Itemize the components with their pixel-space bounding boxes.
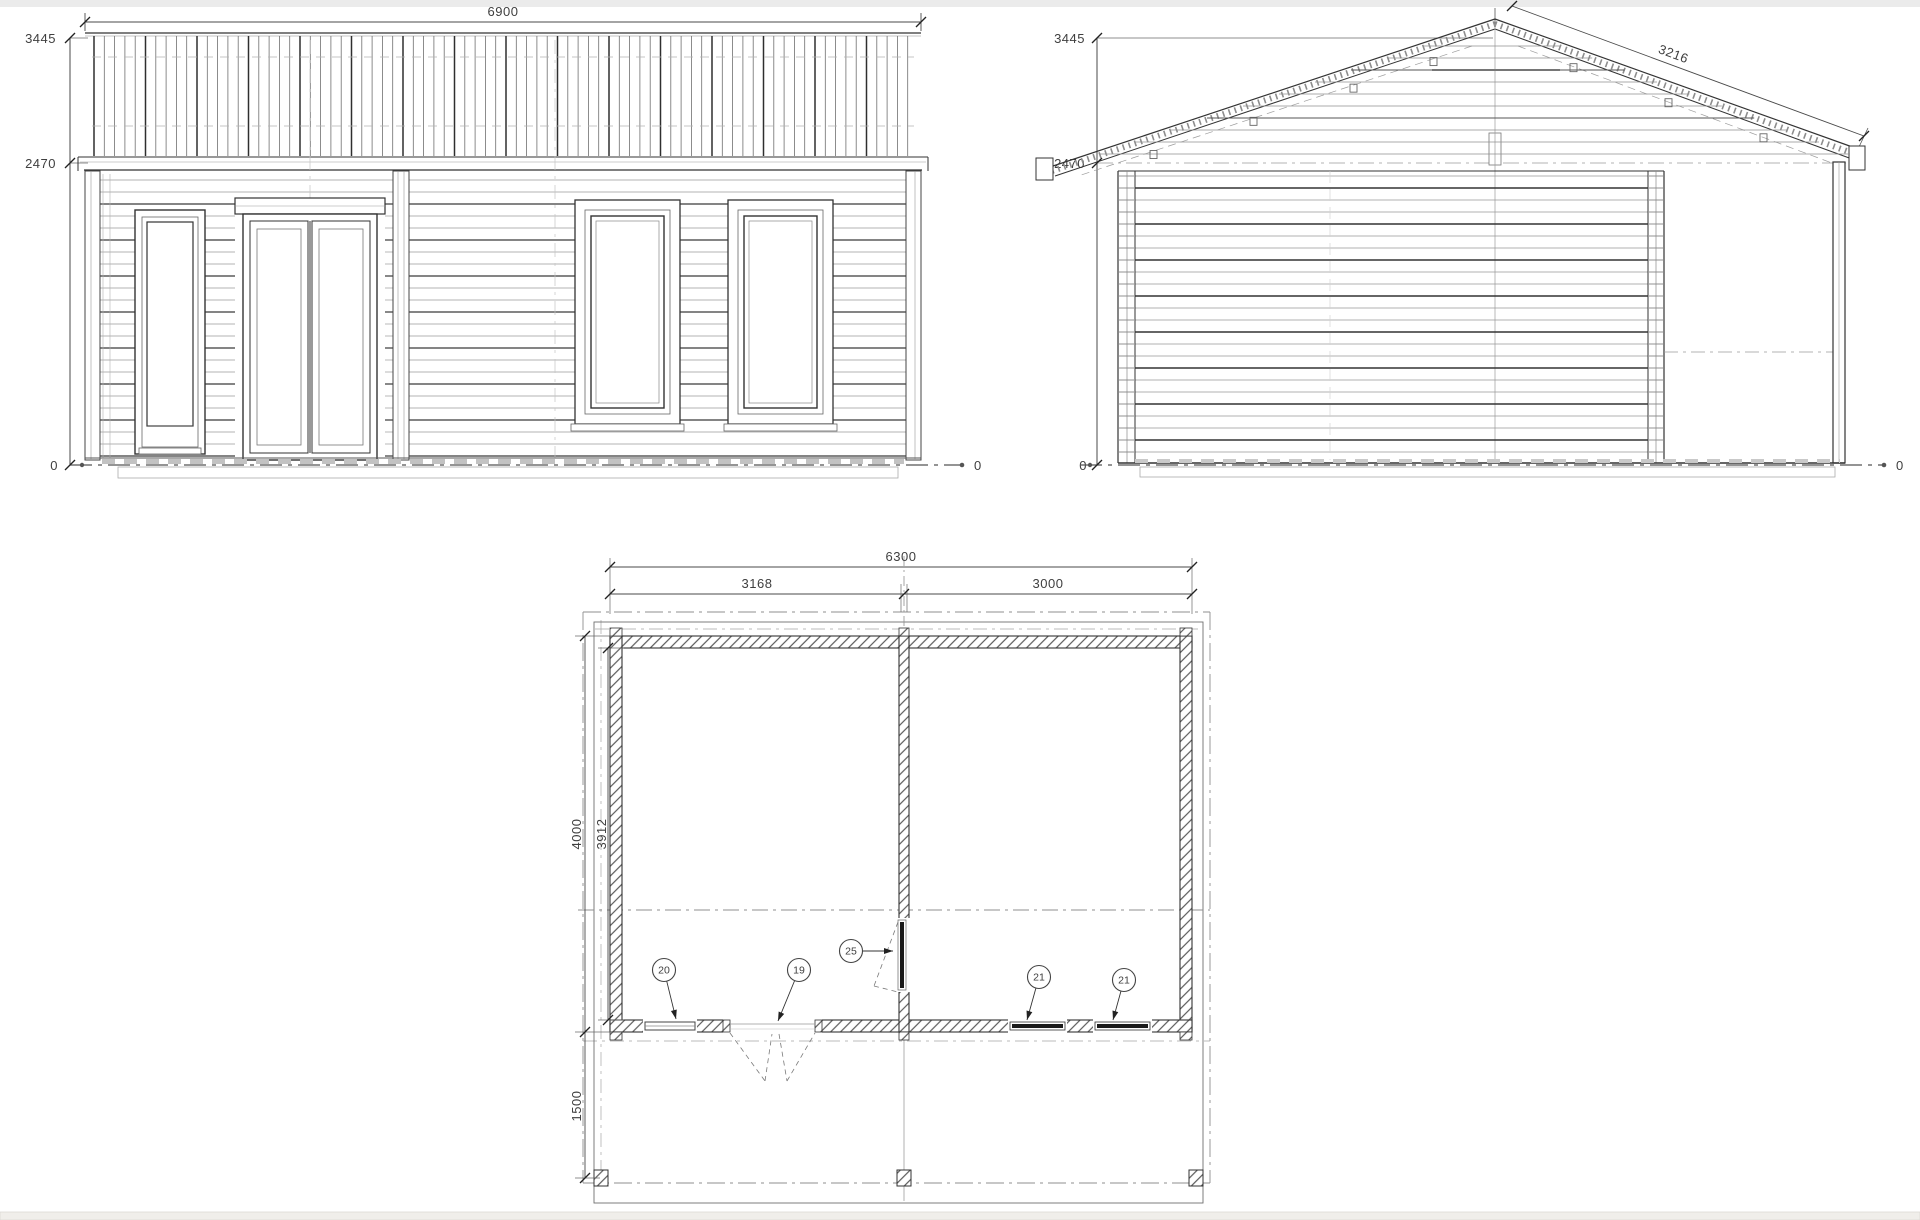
side-height-dimension: 3445 2470 0 xyxy=(1054,31,1860,473)
front-width-dimension: 6900 xyxy=(85,4,921,31)
ground-dot xyxy=(960,463,965,468)
dim-label-left-room: 3168 xyxy=(742,576,773,591)
side-log-wall xyxy=(1118,162,1845,463)
front-roof xyxy=(78,33,928,171)
callout-label: 25 xyxy=(845,946,857,958)
dim-label-slope: 3216 xyxy=(1656,41,1690,66)
dim-label-total-width: 6300 xyxy=(886,549,917,564)
dim-label-ridge: 3445 xyxy=(25,31,56,46)
gutter-end-right xyxy=(1849,146,1865,170)
dim-label-terrace-depth: 1500 xyxy=(569,1091,584,1122)
window-25-swing xyxy=(874,986,898,992)
roof-edge-right xyxy=(1495,19,1858,149)
roof-shingle-right xyxy=(1495,24,1855,154)
front-window-b xyxy=(724,200,837,431)
callout-20: 20 xyxy=(653,959,677,1020)
gutter-end-left xyxy=(1036,158,1053,180)
dim-label-eave: 2470 xyxy=(25,156,56,171)
front-vertical-trim xyxy=(393,171,409,460)
corner-board-left xyxy=(85,171,100,460)
dimension-ticks xyxy=(65,1,1869,1183)
callout-label: 19 xyxy=(793,965,805,977)
side-roof-brackets xyxy=(1150,58,1767,159)
front-roof-battens xyxy=(94,36,908,156)
terrace-post-plan xyxy=(1189,1170,1203,1186)
drawing-sheet: 6900 3445 2470 0 xyxy=(0,0,1920,1220)
dim-label-ground-right: 0 xyxy=(974,458,982,473)
dim-label-ridge: 3445 xyxy=(1054,31,1085,46)
side-elevation: 3445 2470 0 3216 xyxy=(1036,6,1904,477)
dim-label-depth: 4000 xyxy=(569,819,584,850)
front-window-a xyxy=(571,200,684,431)
ground-dot xyxy=(1882,463,1887,468)
front-window-narrow xyxy=(135,210,205,454)
window-outer xyxy=(135,210,205,454)
plan-openings xyxy=(643,918,1152,1081)
callout-19: 19 xyxy=(778,959,811,1022)
window-25-glass xyxy=(900,922,904,988)
wall-stub xyxy=(899,628,909,636)
front-double-door xyxy=(235,198,385,460)
dim-label-inner-depth: 3912 xyxy=(594,819,609,850)
window-21a-glass xyxy=(1012,1024,1063,1028)
callout-arrow xyxy=(671,1010,677,1019)
floor-plan: 6300 3168 3000 4000 3912 1500 2019252121 xyxy=(569,549,1210,1203)
callout-label: 21 xyxy=(1118,975,1130,987)
roof-edge-left xyxy=(1050,19,1495,167)
dim-tick xyxy=(1859,131,1869,141)
opening-door-19 xyxy=(723,1018,822,1034)
front-foundation: 0 xyxy=(70,458,982,478)
window-25-swing xyxy=(874,922,898,986)
front-height-dimension: 3445 2470 0 xyxy=(25,31,88,473)
cad-drawing: 6900 3445 2470 0 xyxy=(0,0,1920,1220)
dim-label-width: 6900 xyxy=(488,4,519,19)
wall-stub xyxy=(610,1032,622,1040)
side-roof xyxy=(1036,19,1865,463)
trim-board xyxy=(393,171,409,460)
window-21b-glass xyxy=(1097,1024,1148,1028)
window-sill xyxy=(724,424,837,431)
callout-arrow xyxy=(884,948,893,954)
callout-21: 21 xyxy=(1112,969,1135,1021)
door-jamb xyxy=(815,1020,822,1032)
wall-stub xyxy=(1180,628,1192,636)
roof-bracket xyxy=(1150,151,1157,159)
window-sill xyxy=(139,448,201,454)
door-jamb xyxy=(723,1020,730,1032)
page-top-strip xyxy=(0,0,1920,7)
wall-right xyxy=(1180,636,1192,1032)
page-bottom-strip xyxy=(0,1212,1920,1220)
callout-25: 25 xyxy=(840,940,894,963)
terrace-post-plan xyxy=(897,1170,911,1186)
window-sill xyxy=(571,424,684,431)
corner-board-right xyxy=(906,171,921,460)
side-logs xyxy=(1119,176,1663,452)
side-slope-dimension: 3216 xyxy=(1495,6,1868,149)
dim-label-ground: 0 xyxy=(50,458,58,473)
callout-21: 21 xyxy=(1027,966,1051,1021)
dim-label-ground-right: 0 xyxy=(1896,458,1904,473)
plan-overhang-outline xyxy=(583,612,1210,1183)
dim-label-right-room: 3000 xyxy=(1033,576,1064,591)
front-elevation: 6900 3445 2470 0 xyxy=(25,4,982,478)
plan-callouts: 2019252121 xyxy=(653,940,1136,1022)
wall-left xyxy=(610,636,622,1032)
door-swing xyxy=(730,1033,765,1081)
wall-stub xyxy=(899,1032,909,1040)
callout-label: 20 xyxy=(658,965,670,977)
wall-stub xyxy=(610,628,622,636)
callout-label: 21 xyxy=(1033,972,1045,984)
wall-stub xyxy=(1180,1032,1192,1040)
foundation-outline xyxy=(118,467,898,478)
door-swing xyxy=(787,1033,815,1081)
foundation-outline xyxy=(1140,467,1835,477)
dim-line xyxy=(1512,6,1864,136)
rafter-dash-left xyxy=(1078,46,1472,176)
side-gable-boards xyxy=(1099,46,1850,154)
side-foundation: 0 xyxy=(1080,458,1904,477)
